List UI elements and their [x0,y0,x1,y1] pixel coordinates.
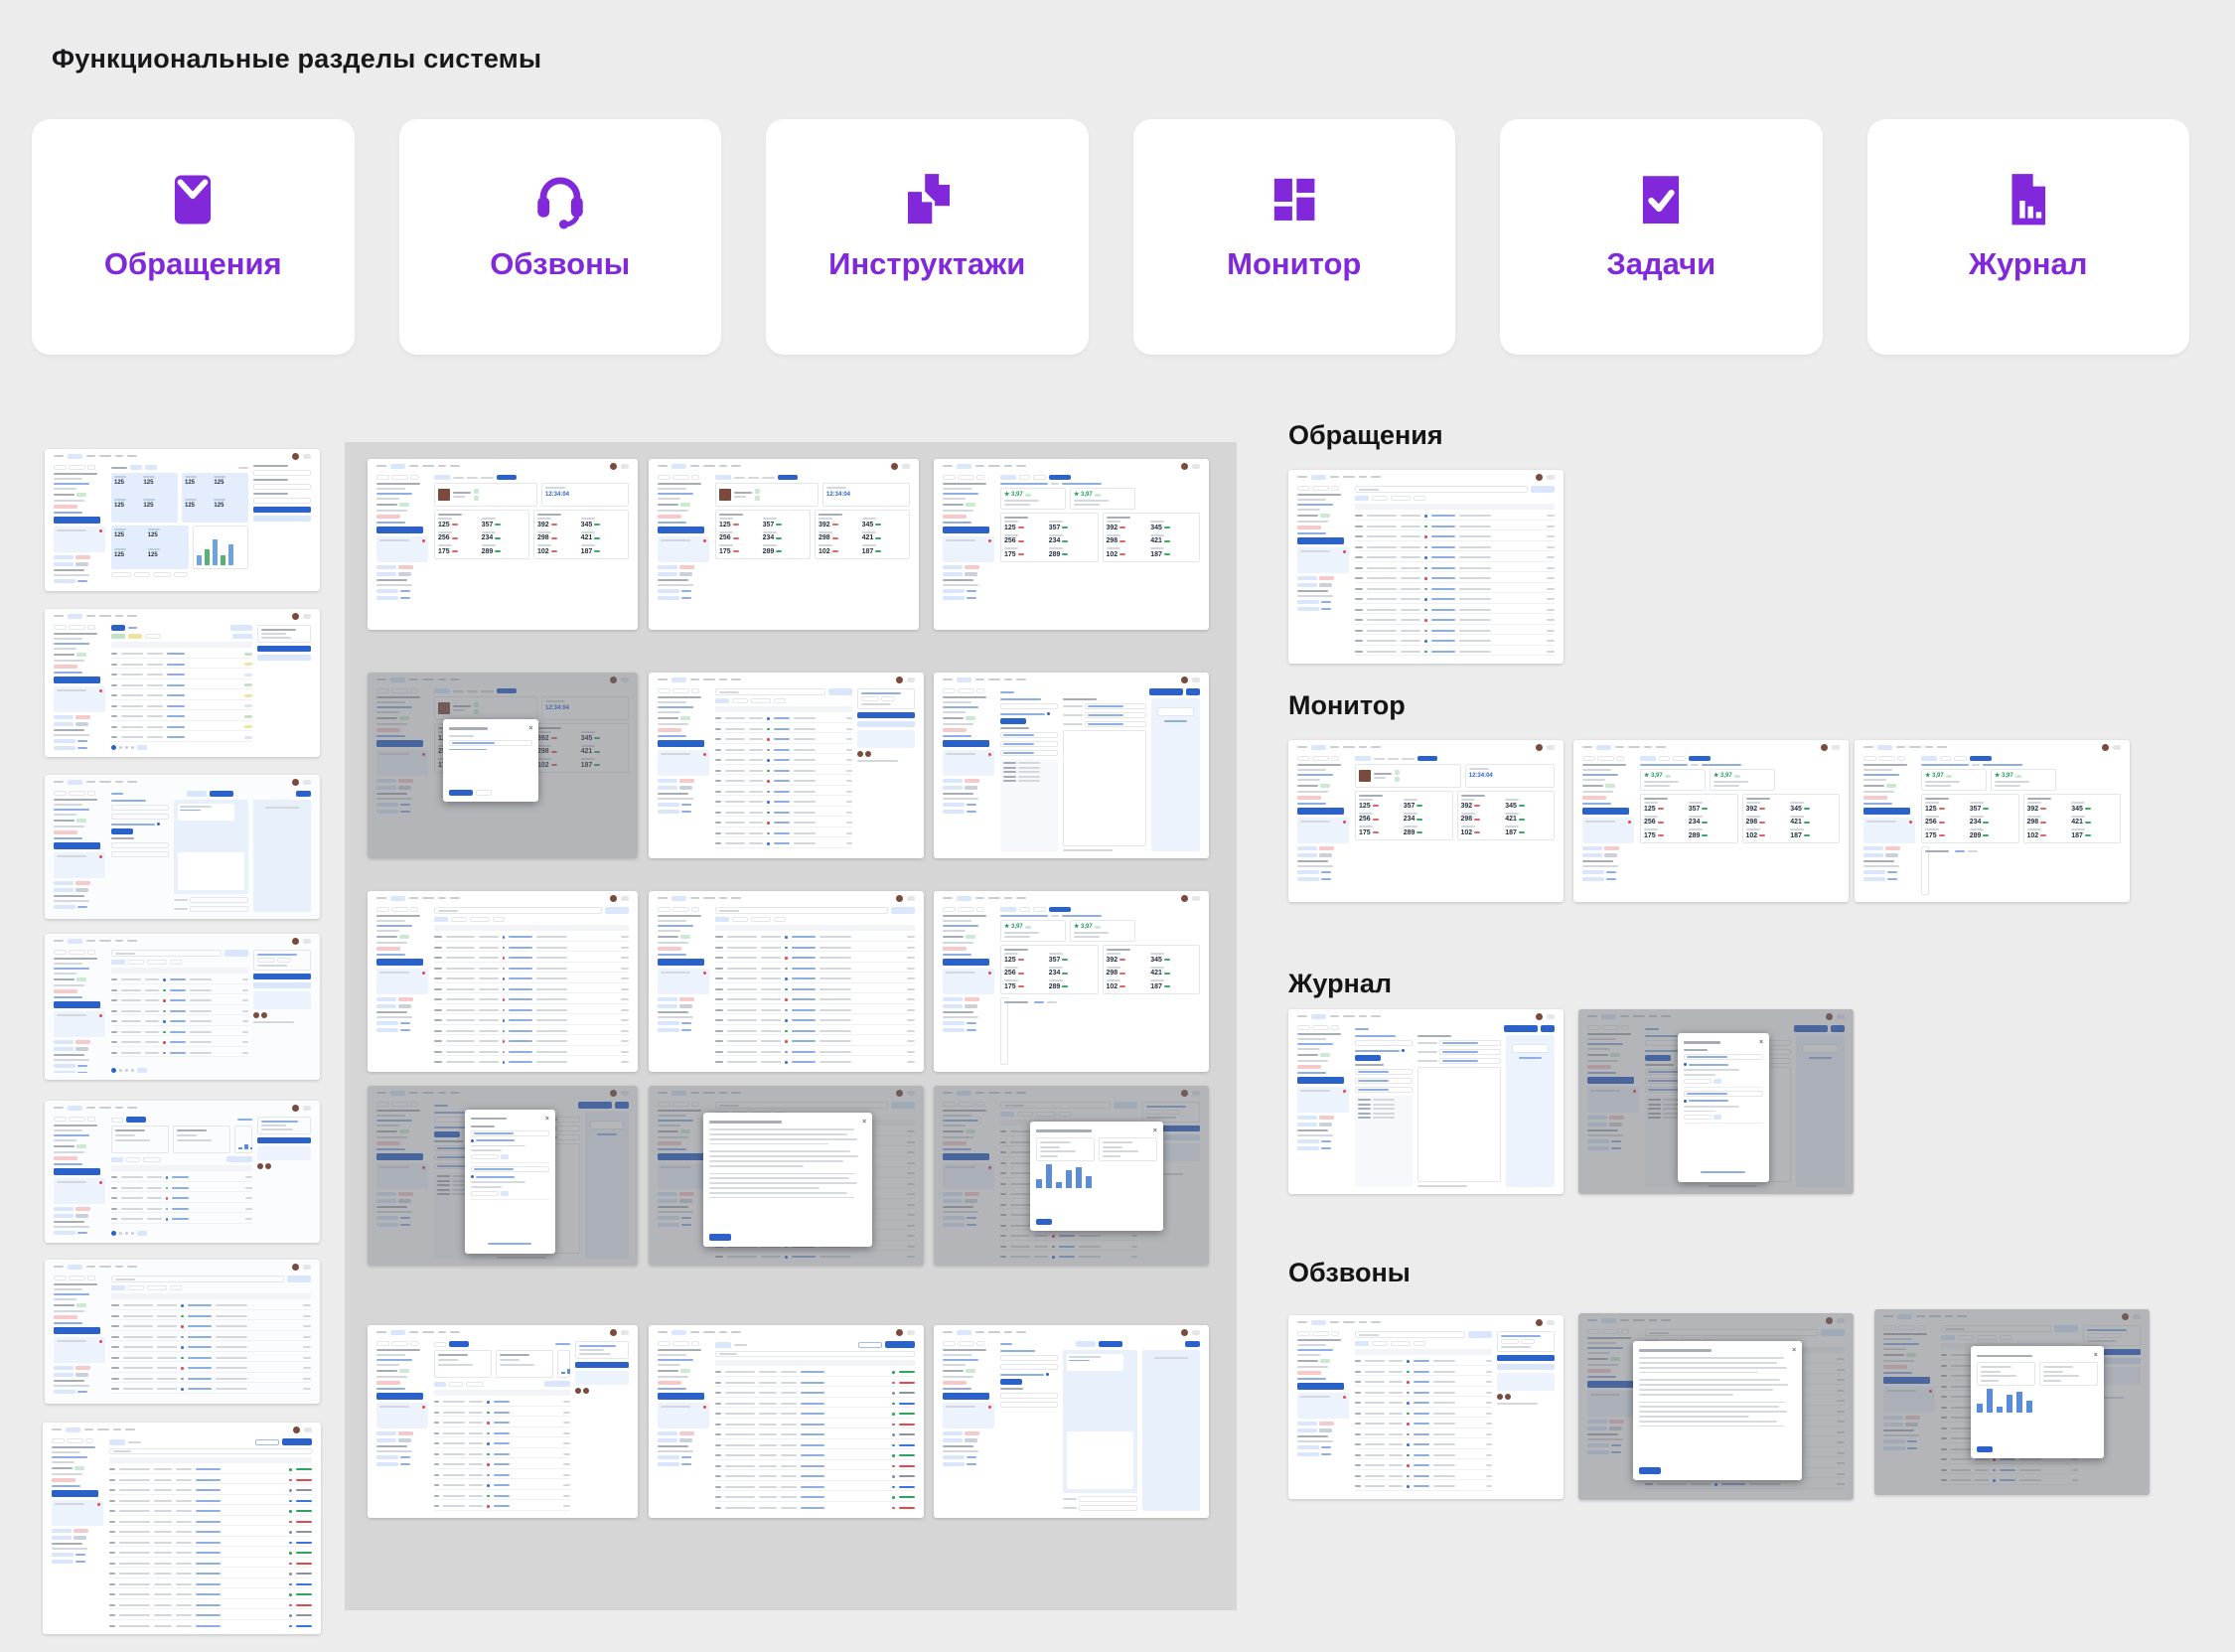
skeleton-line [819,1019,851,1021]
thumbnail-dash-product[interactable]: ★ 3,97★ 3,971253572562341752893923452984… [1573,740,1849,902]
skeleton-line [1103,1141,1133,1143]
chip [68,454,82,459]
table-row[interactable] [715,1038,915,1046]
table-row[interactable] [1355,575,1555,583]
table-row[interactable] [1355,1411,1492,1419]
close-icon[interactable]: × [1792,1347,1796,1354]
skeleton-line [658,498,680,500]
table-row[interactable] [715,747,852,755]
table-row[interactable] [715,955,915,963]
table-row[interactable] [111,1018,248,1026]
skeleton-line [727,998,757,1000]
table-row[interactable] [111,1039,248,1047]
table-row[interactable] [111,1355,311,1363]
table-row[interactable] [715,934,915,942]
table-row[interactable] [111,987,248,995]
skeleton-line [1063,698,1097,700]
skeleton-line [658,1388,686,1390]
row: 392 [1107,957,1147,964]
table-row[interactable] [109,1487,312,1495]
skeleton-line [1431,630,1455,632]
table-row[interactable] [1355,586,1555,594]
table-row[interactable] [109,1602,312,1610]
table-row[interactable] [111,682,252,690]
table-row[interactable] [109,1612,312,1620]
skeleton-line [761,998,781,1000]
table-row[interactable] [434,1399,570,1407]
table-row[interactable] [715,1452,915,1460]
thumbnail-tasks[interactable] [43,1423,321,1634]
close-icon[interactable]: × [545,1116,549,1123]
thumbnail-table-right[interactable]: × [1874,1309,2150,1495]
close-icon[interactable]: × [862,1119,866,1126]
table-row[interactable] [111,1302,311,1310]
table-row[interactable] [715,778,852,786]
text-value: 187 [1790,832,1802,839]
table-row[interactable] [715,1017,915,1025]
card-appeals[interactable]: Обращения [32,119,355,355]
table-row[interactable] [111,1174,252,1182]
skeleton-line [1150,979,1164,981]
table-row[interactable] [434,934,629,942]
skeleton-line [1414,1381,1430,1383]
stat-cell: 125 [143,499,167,520]
chip [1541,1025,1555,1032]
chip [658,1431,677,1435]
thumbnail-calls-detail[interactable] [45,1101,320,1243]
table-row[interactable] [434,1461,570,1469]
table-row[interactable] [1355,544,1555,552]
table-row[interactable] [715,1463,915,1471]
thumbnail-table[interactable] [368,891,638,1072]
skeleton-line [715,936,723,938]
table-row[interactable] [434,1493,570,1501]
table-row[interactable] [434,1430,570,1438]
modal-chart[interactable]: × [1971,1346,2104,1458]
thumbnail-calls-detail[interactable] [368,1325,638,1518]
modal-text[interactable]: × [703,1113,872,1247]
table-row[interactable] [715,1422,915,1429]
skeleton-line [434,1019,442,1021]
skeleton-line [794,822,816,824]
thumbnail-dash[interactable]: 12:34:0412535725623417528939234529842110… [1288,740,1564,902]
thumbnail-tasks[interactable] [649,1325,924,1518]
col [111,1117,252,1236]
table-row[interactable] [1355,1473,1492,1481]
text-value: 125 [438,522,450,528]
table-row[interactable] [434,1007,629,1015]
thumbnail-table[interactable]: × [649,1086,924,1266]
table-row[interactable] [111,651,252,659]
table-row[interactable] [434,945,629,953]
table-row[interactable] [715,976,915,983]
table-row[interactable] [109,1581,312,1589]
close-icon[interactable]: × [2094,1352,2098,1359]
table-row[interactable] [111,997,248,1005]
table-row[interactable] [111,1216,252,1224]
table-row[interactable] [109,1623,312,1628]
table-row[interactable] [1355,607,1555,615]
table-row[interactable] [111,713,252,721]
skeleton-line [1639,1426,1783,1427]
table-row[interactable] [111,662,252,670]
table-row[interactable] [715,768,852,776]
skeleton-line [1863,774,1899,776]
thumb-main: 12:34:0412535725623417528939234529842110… [434,475,629,623]
card-briefings[interactable]: Инструктажи [766,119,1089,355]
thumbnail-table-right[interactable]: × [934,1086,1209,1266]
skeleton-line [121,715,144,717]
table-row[interactable] [1355,1390,1492,1398]
table-row[interactable] [715,715,852,723]
skeleton-line [154,1521,172,1523]
table-row[interactable] [111,1195,252,1203]
table-row[interactable] [715,840,852,848]
status-dot [181,1378,184,1381]
chip [253,974,311,979]
chip [828,688,852,695]
table-row[interactable] [715,1505,915,1512]
table-row[interactable] [111,1313,311,1321]
row [1003,780,1055,782]
row [715,1341,915,1348]
row: 345 [1150,957,1191,964]
kpi-cell: 234 [1049,967,1090,977]
table-row[interactable] [111,1376,311,1384]
table-row[interactable] [111,976,248,984]
skeleton-line [128,1441,141,1443]
col [1000,698,1058,851]
skeleton-line [54,978,74,980]
skeleton-line [54,672,82,674]
table-row[interactable] [715,820,852,827]
skeleton-line [1088,714,1123,716]
skeleton-line [115,953,135,955]
table-row[interactable] [715,1442,915,1450]
table-row[interactable] [111,1008,248,1016]
table-row[interactable] [715,945,915,953]
table-row[interactable] [111,1206,252,1214]
table-row[interactable] [715,1473,915,1481]
skeleton-line [147,684,163,686]
table-row[interactable] [111,1365,311,1373]
skeleton-line [509,1040,532,1042]
table-row[interactable] [111,703,252,711]
chip [54,1315,77,1319]
table-row[interactable] [111,1397,311,1398]
thumbnail-table-right[interactable] [1288,1315,1564,1499]
row [943,1021,994,1025]
thumbnail-dash-chart[interactable]: ★ 3,97★ 3,971253572562341752893923452984… [1855,740,2130,902]
text-value: 392 [819,522,830,528]
table-row[interactable] [109,1571,312,1578]
row [54,562,105,566]
table-row[interactable] [109,1550,312,1558]
skeleton-line [794,759,816,761]
table-row[interactable] [111,692,252,700]
outline-box [1977,1362,2035,1386]
table-row[interactable] [111,734,252,742]
skeleton-line [1365,1443,1386,1445]
table-row[interactable] [109,1477,312,1485]
table-row[interactable] [1355,1358,1492,1366]
skeleton-line [157,1367,177,1369]
table-row[interactable] [111,1344,311,1352]
skeleton-line [1063,1498,1077,1500]
table-row[interactable] [1355,638,1555,646]
close-icon[interactable]: × [1153,1127,1157,1134]
table-row[interactable] [1355,533,1555,541]
skeleton-line [725,1382,755,1384]
skeleton-line [1863,865,1899,867]
table-row[interactable] [1355,1421,1492,1428]
row: ★ 3,97★ 3,97 [1000,488,1200,510]
table-row[interactable] [434,1028,629,1036]
table-row[interactable] [111,1386,311,1394]
table-row[interactable] [109,1466,312,1474]
modal-text[interactable]: × [1633,1341,1802,1480]
table-row[interactable] [715,996,915,1004]
outline-box [658,1341,670,1346]
thumbnail-dash-product[interactable]: ★ 3,97★ 3,971253572562341752893923452984… [934,459,1209,630]
skeleton-line [1330,1321,1339,1323]
table-row[interactable] [434,976,629,983]
skeleton-line [1343,746,1355,748]
skeleton-line [759,1486,777,1488]
table-row[interactable] [109,1508,312,1516]
table-row[interactable] [109,1540,312,1548]
thumbnail-form[interactable]: × [368,1086,638,1266]
card-label-tasks: Задачи [1606,246,1715,282]
table-row[interactable] [715,1431,915,1439]
table-row[interactable] [1355,1400,1492,1408]
table-row[interactable] [434,986,629,994]
table-row[interactable] [434,1482,570,1490]
table-row[interactable] [715,1049,915,1057]
table-row[interactable] [434,1049,629,1057]
table-row[interactable] [109,1498,312,1506]
close-icon[interactable]: × [528,725,532,732]
table-row[interactable] [1355,1379,1492,1387]
thumbnail-journal[interactable] [45,775,320,919]
table-row[interactable] [715,810,852,818]
table-row[interactable] [109,1529,312,1537]
thumbnail-dash[interactable]: 12:34:0412535725623417528939234529842110… [649,459,919,630]
table-row[interactable] [111,1334,311,1342]
table-row[interactable] [111,1050,248,1058]
skeleton-line [481,477,494,479]
row: 125357256234175289392345298421102187 [1355,791,1555,840]
table-row[interactable] [434,966,629,974]
thumbnail-old-dash[interactable]: 125125125125125125125125125125125125 [45,449,320,591]
close-icon[interactable]: × [1759,1039,1763,1046]
table-row[interactable] [434,1059,629,1065]
thumbnail-journal[interactable] [934,1325,1209,1518]
table-row[interactable] [1355,1369,1492,1377]
skeleton-line [801,1444,824,1446]
table-row[interactable] [434,1038,629,1046]
skeleton-line [1359,489,1379,491]
skeleton-line [725,780,746,782]
table-row[interactable] [715,1059,915,1065]
thumb-sidebar [54,1117,105,1236]
table-row[interactable] [434,1420,570,1427]
table-row[interactable] [434,955,629,963]
row [111,1126,252,1153]
col [734,492,752,498]
table-row[interactable] [434,1451,570,1459]
skeleton-line [296,1573,312,1575]
thumbnail-dash[interactable]: 12:34:0412535725623417528939234529842110… [368,459,638,630]
row: × [1977,1352,2098,1359]
table-row[interactable] [109,1519,312,1527]
status-dot [785,998,788,1001]
chip [434,1382,446,1387]
text-value: 256 [1004,537,1016,544]
table-row[interactable] [1355,649,1555,657]
status-dot [785,1040,788,1043]
skeleton-line [725,728,746,730]
table-row[interactable] [715,1380,915,1388]
table-row[interactable] [715,1411,915,1419]
table-row[interactable] [715,1369,915,1377]
table-row[interactable] [715,1494,915,1502]
thumbnail-table-right[interactable] [45,934,320,1080]
thumbnail-dash-chart[interactable]: ★ 3,97★ 3,971253572562341752893923452984… [934,891,1209,1072]
skeleton-line [128,627,137,629]
table-row[interactable] [1355,1483,1492,1491]
table-row[interactable] [715,986,915,994]
chip [1531,486,1555,493]
thumbnail-table[interactable] [1288,470,1564,664]
skeleton-line [494,1412,510,1414]
skeleton-line [446,998,475,1000]
skeleton-line [154,1593,172,1595]
chip [68,1106,82,1111]
card-calls[interactable]: Обзвоны [399,119,722,355]
table-row[interactable] [1355,1462,1492,1470]
card-journal[interactable]: Журнал [1867,119,2190,355]
skeleton-line [376,1331,386,1333]
card-tasks[interactable]: Задачи [1500,119,1823,355]
table-row[interactable] [111,724,252,732]
table-row[interactable] [715,1390,915,1398]
table-row[interactable] [109,1561,312,1569]
table-row[interactable] [1355,524,1555,531]
table-row[interactable] [715,830,852,838]
table-row[interactable] [434,1017,629,1025]
skeleton-line [658,1331,668,1333]
table-row[interactable] [434,1410,570,1418]
thumbnail-table[interactable] [45,1260,320,1404]
table-row[interactable] [1355,1452,1492,1460]
table-row[interactable] [715,1028,915,1036]
table-header [715,1360,915,1366]
skeleton-line [792,977,816,979]
table-row[interactable] [1355,596,1555,604]
table-row[interactable] [1355,628,1555,636]
skeleton-line [1404,813,1417,815]
table-row[interactable] [1355,617,1555,625]
table-row[interactable] [715,966,915,974]
modal-small[interactable]: × [1678,1033,1769,1182]
row [658,1438,709,1442]
thumbnail-table[interactable]: × [1578,1313,1854,1500]
table-row[interactable] [1355,554,1555,562]
table-row[interactable] [715,736,852,744]
table-row[interactable] [715,726,852,734]
table-row[interactable] [434,1440,570,1448]
thumbnail-table[interactable] [649,891,924,1072]
table-row[interactable] [715,799,852,807]
skeleton-line [658,930,680,932]
thumbnail-table-right[interactable] [649,673,924,858]
row: 421 [1150,970,1191,976]
skeleton-line [759,1444,777,1446]
skeleton-line [1983,808,1989,810]
table-row[interactable] [111,1185,252,1193]
outline-box [1033,475,1046,480]
modal-chart[interactable]: × [1030,1122,1163,1231]
table-row[interactable] [434,1503,570,1511]
status-dot [1343,1396,1346,1399]
thumbnail-old-table[interactable] [45,609,320,757]
table-row[interactable] [715,789,852,797]
chip [253,982,311,988]
table-row[interactable] [1355,513,1555,521]
modal-small[interactable]: × [465,1110,555,1255]
skeleton-line [147,1218,161,1220]
thumbnail-form[interactable]: × [1578,1009,1854,1194]
chip [399,1369,409,1373]
skeleton-line [188,1325,212,1327]
card-monitor[interactable]: Монитор [1133,119,1456,355]
row: 421 [581,534,621,541]
table-row[interactable] [111,1029,248,1037]
table-row[interactable] [1355,565,1555,573]
timer-value: 12:34:04 [826,492,906,498]
table-row[interactable] [715,757,852,765]
row [434,1341,629,1511]
table-row[interactable] [111,672,252,679]
thumbnail-dash[interactable]: 12:34:0412535725623417528939234529842110… [368,673,638,858]
skeleton-line [759,1371,777,1373]
rating-value: ★ 3,97 [1004,492,1023,498]
skeleton-line [111,1367,119,1369]
thumbnail-form[interactable] [1288,1009,1564,1194]
table-row[interactable] [715,1007,915,1015]
table-row[interactable] [434,996,629,1004]
table-row[interactable] [434,1472,570,1480]
skeleton-line [1981,1366,2011,1368]
skeleton-line [846,770,852,772]
skeleton-line [899,1475,915,1477]
thumbnail-form[interactable] [934,673,1209,858]
text-value: 357 [1970,806,1982,813]
modal-dropdown[interactable]: × [443,719,538,802]
table-row[interactable] [111,1323,311,1331]
table-row[interactable] [715,1401,915,1409]
table-row[interactable] [715,1484,915,1492]
table-row[interactable] [1355,1431,1492,1439]
status-dot [892,1475,895,1478]
skeleton-line [1321,608,1331,610]
outline-box [1331,1331,1339,1336]
text-value: 289 [1049,551,1061,558]
table-row[interactable] [1355,1441,1492,1449]
table-row[interactable] [109,1591,312,1599]
skeleton-line [111,653,117,655]
